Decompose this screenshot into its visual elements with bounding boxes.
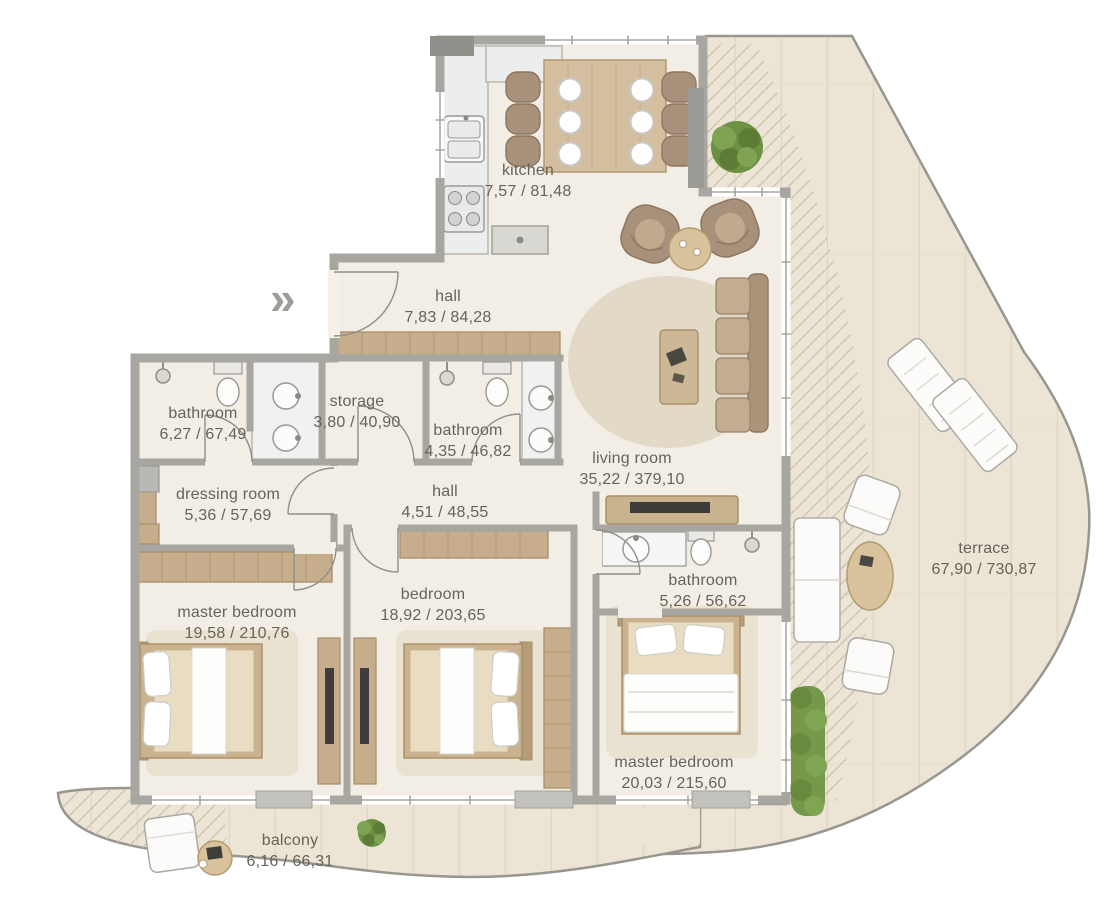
room-label-bathroom-2: bathroom 4,35 / 46,82 xyxy=(380,420,556,462)
room-name: balcony xyxy=(202,830,378,851)
kitchen-sink xyxy=(444,116,484,163)
room-label-terrace: terrace 67,90 / 730,87 xyxy=(896,538,1072,580)
room-area: 35,22 / 379,10 xyxy=(544,469,720,490)
room-area: 18,92 / 203,65 xyxy=(345,605,521,626)
room-name: bedroom xyxy=(345,584,521,605)
room-area: 20,03 / 215,60 xyxy=(586,773,762,794)
room-label-dressing-room: dressing room 5,36 / 57,69 xyxy=(170,484,286,526)
room-label-hall-2: hall 4,51 / 48,55 xyxy=(357,481,533,523)
room-label-master-bedroom-2: master bedroom 20,03 / 215,60 xyxy=(586,752,762,794)
room-name: hall xyxy=(357,481,533,502)
room-name: dressing room xyxy=(170,484,286,505)
room-name: master bedroom xyxy=(586,752,762,773)
balcony-lounger xyxy=(143,813,200,873)
room-name: hall xyxy=(360,286,536,307)
side-table xyxy=(669,228,711,270)
room-area: 5,36 / 57,69 xyxy=(170,505,286,526)
room-area: 6,27 / 67,49 xyxy=(115,424,291,445)
room-area: 6,16 / 66,31 xyxy=(202,851,378,872)
terrace-cabinet xyxy=(794,518,840,642)
toilet-icon xyxy=(214,362,242,406)
room-area: 67,90 / 730,87 xyxy=(896,559,1072,580)
room-name: bathroom xyxy=(615,570,791,591)
room-label-bathroom-3: bathroom 5,26 / 56,62 xyxy=(615,570,791,612)
tv-console xyxy=(606,496,738,524)
room-area: 19,58 / 210,76 xyxy=(149,623,325,644)
terrace-table xyxy=(847,542,893,610)
room-label-hall-entry: hall 7,83 / 84,28 xyxy=(360,286,536,328)
room-label-master-bedroom-1: master bedroom 19,58 / 210,76 xyxy=(149,602,325,644)
coffee-table xyxy=(660,330,698,404)
room-label-balcony: balcony 6,16 / 66,31 xyxy=(202,830,378,872)
bed-master-right xyxy=(618,612,744,734)
potted-plant xyxy=(711,121,763,173)
wall-pier xyxy=(430,36,474,56)
bed-middle xyxy=(404,642,532,760)
bathroom-vanity xyxy=(602,532,686,566)
room-area: 4,35 / 46,82 xyxy=(380,441,556,462)
bed-master-left xyxy=(136,642,262,760)
room-area: 7,57 / 81,48 xyxy=(440,181,616,202)
room-label-kitchen: kitchen 7,57 / 81,48 xyxy=(440,160,616,202)
room-name: terrace xyxy=(896,538,1072,559)
toilet-icon xyxy=(483,362,511,406)
room-area: 5,26 / 56,62 xyxy=(615,591,791,612)
room-label-living-room: living room 35,22 / 379,10 xyxy=(544,448,720,490)
sofa xyxy=(716,274,768,432)
room-name: master bedroom xyxy=(149,602,325,623)
entry-arrow-icon: » xyxy=(270,276,292,320)
room-label-bathroom-1: bathroom 6,27 / 67,49 xyxy=(115,403,291,445)
terrace-chair xyxy=(841,636,895,695)
room-name: bathroom xyxy=(380,420,556,441)
wall-pier xyxy=(688,88,704,188)
floor-plan: kitchen 7,57 / 81,48 hall 7,83 / 84,28 b… xyxy=(0,0,1119,911)
room-name: bathroom xyxy=(115,403,291,424)
room-name: living room xyxy=(544,448,720,469)
room-area: 7,83 / 84,28 xyxy=(360,307,536,328)
room-name: storage xyxy=(269,391,445,412)
room-area: 4,51 / 48,55 xyxy=(357,502,533,523)
hedge xyxy=(789,686,827,816)
room-name: kitchen xyxy=(440,160,616,181)
room-label-bedroom: bedroom 18,92 / 203,65 xyxy=(345,584,521,626)
hall-wardrobe xyxy=(338,332,560,358)
